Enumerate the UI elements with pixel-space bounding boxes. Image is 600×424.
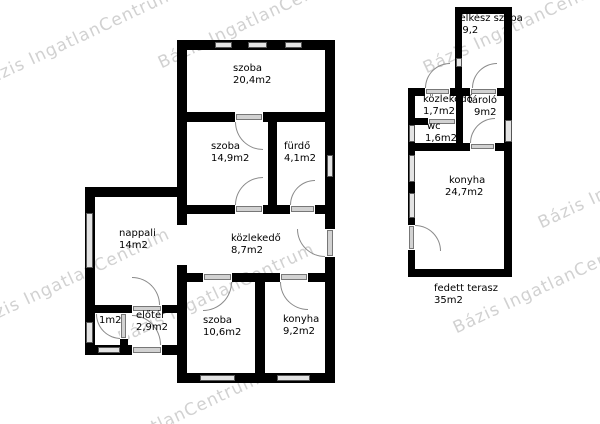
- window-symbol: [200, 375, 235, 381]
- door-leaf: [236, 114, 262, 120]
- room-name: wc: [425, 121, 457, 133]
- room-area: 1m2: [99, 315, 121, 327]
- door-leaf: [204, 274, 231, 280]
- wall: [255, 273, 265, 383]
- window-symbol: [98, 347, 120, 353]
- door-swing-arc: [470, 118, 495, 143]
- room-name: konyha: [283, 314, 319, 326]
- room-label-szoba-kis: szoba 10,6m2: [203, 315, 241, 338]
- wall-opening: [177, 225, 187, 265]
- door-leaf: [133, 347, 161, 353]
- room-area: 19,2: [456, 25, 523, 37]
- room-area: 4,1m2: [284, 153, 316, 165]
- room-name: előtér: [136, 310, 168, 322]
- room-label-wc-kis: wc 1,6m2: [425, 121, 457, 144]
- window-symbol: [277, 375, 310, 381]
- room-label-fedett-terasz: fedett terasz 35m2: [434, 283, 498, 306]
- room-name: wc: [99, 303, 121, 315]
- room-label-konyha-kis: konyha 9,2m2: [283, 314, 319, 337]
- room-area: 2,9m2: [136, 322, 168, 334]
- room-name: közlekedő: [423, 94, 473, 106]
- room-area: 14,9m2: [211, 153, 249, 165]
- watermark: Bázis IngatlanCentrum: [0, 0, 178, 93]
- room-label-szoba-kozep: szoba 14,9m2: [211, 141, 249, 164]
- door-swing-arc: [132, 277, 160, 305]
- wall: [85, 187, 185, 197]
- watermark: Bázis IngatlanCentrum: [535, 124, 600, 233]
- room-label-szoba-nagy: szoba 20,4m2: [233, 63, 271, 86]
- door-leaf: [121, 314, 126, 338]
- door-leaf: [327, 230, 333, 256]
- room-name: nappali: [119, 228, 156, 240]
- room-label-kozlekedo-kis: közlekedő 1,7m2: [423, 94, 473, 117]
- floor-plan-canvas: Bázis IngatlanCentrum Bázis IngatlanCent…: [0, 0, 600, 424]
- room-area: 35m2: [434, 295, 498, 307]
- window-symbol: [86, 322, 93, 343]
- window-symbol: [86, 213, 93, 268]
- room-label-wc: wc 1m2: [99, 303, 121, 326]
- door-swing-arc: [290, 180, 315, 205]
- door-leaf: [291, 206, 314, 212]
- room-area: 9m2: [468, 107, 497, 119]
- room-name: fedett terasz: [434, 283, 498, 295]
- window-symbol: [409, 155, 415, 182]
- room-name: félkész szoba: [456, 13, 523, 25]
- door-swing-arc: [280, 282, 308, 310]
- window-symbol: [285, 42, 302, 48]
- window-symbol: [248, 42, 267, 48]
- window-symbol: [215, 42, 232, 48]
- wall: [408, 143, 512, 151]
- wall: [504, 7, 512, 277]
- room-label-felkesz-szoba: félkész szoba 19,2: [456, 13, 523, 36]
- door-swing-arc: [203, 282, 232, 311]
- room-name: tároló: [468, 95, 497, 107]
- room-area: 1,7m2: [423, 106, 473, 118]
- room-area: 9,2m2: [283, 326, 319, 338]
- door-leaf: [409, 226, 414, 249]
- wall: [177, 40, 187, 383]
- room-area: 24,7m2: [445, 187, 485, 199]
- room-area: 20,4m2: [233, 75, 271, 87]
- door-leaf: [236, 206, 262, 212]
- room-label-nappali: nappali 14m2: [119, 228, 156, 251]
- window-symbol: [456, 58, 462, 67]
- room-label-furdo: fürdő 4,1m2: [284, 141, 316, 164]
- door-leaf: [471, 89, 496, 94]
- window-symbol: [327, 155, 333, 177]
- wall: [268, 112, 277, 214]
- room-name: szoba: [233, 63, 271, 75]
- room-name: szoba: [203, 315, 241, 327]
- room-label-kozlekedo: közlekedő 8,7m2: [231, 233, 281, 256]
- door-swing-arc: [472, 63, 497, 88]
- room-area: 10,6m2: [203, 327, 241, 339]
- room-area: 1,6m2: [425, 133, 457, 145]
- room-name: fürdő: [284, 141, 316, 153]
- room-label-konyha-nagy: konyha 24,7m2: [445, 175, 485, 198]
- door-leaf: [281, 274, 307, 280]
- window-symbol: [409, 193, 415, 218]
- room-label-tarolo: tároló 9m2: [468, 95, 497, 118]
- door-leaf: [471, 144, 494, 149]
- room-name: szoba: [211, 141, 249, 153]
- room-label-eloter: előtér 2,9m2: [136, 310, 168, 333]
- room-name: közlekedő: [231, 233, 281, 245]
- room-area: 14m2: [119, 240, 156, 252]
- door-swing-arc: [415, 225, 441, 251]
- room-area: 8,7m2: [231, 245, 281, 257]
- room-name: konyha: [445, 175, 485, 187]
- wall: [408, 269, 512, 277]
- window-symbol: [409, 125, 415, 142]
- door-swing-arc: [235, 177, 263, 205]
- window-symbol: [505, 120, 512, 142]
